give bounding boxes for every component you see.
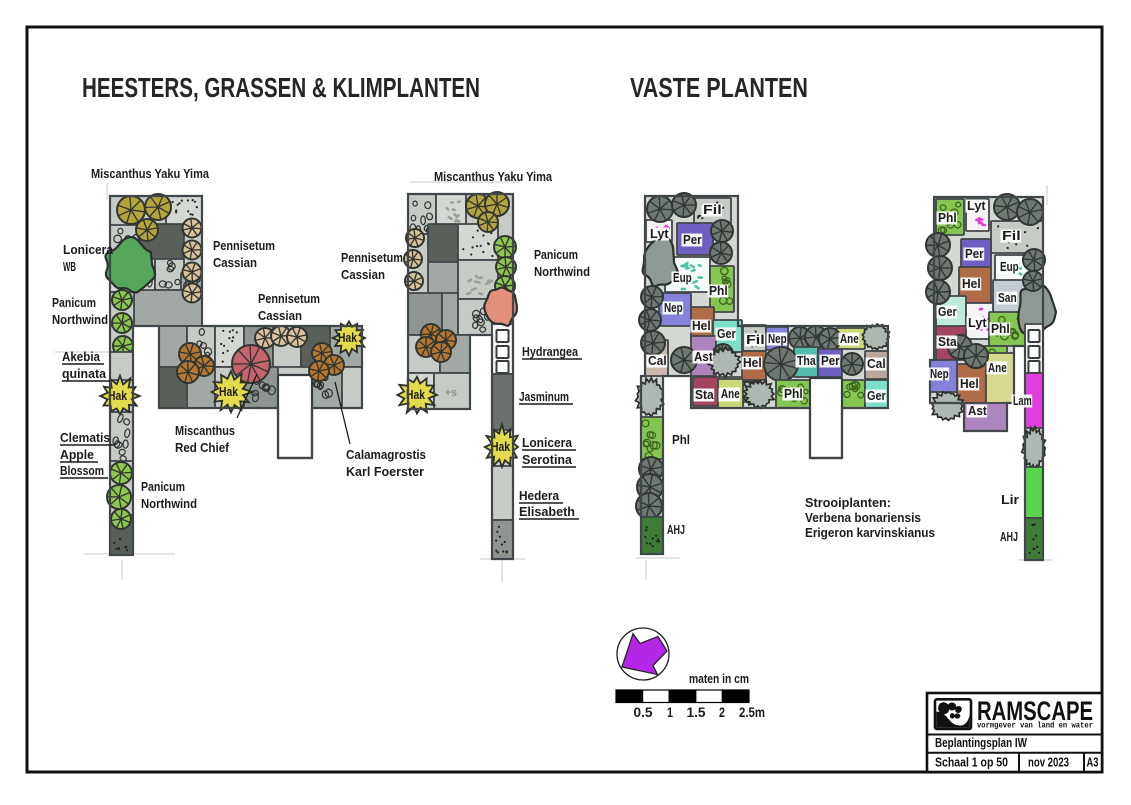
svg-text:Pennisetum: Pennisetum [213, 238, 275, 253]
svg-text:Miscanthus: Miscanthus [175, 423, 235, 438]
svg-text:Akebia: Akebia [62, 349, 101, 364]
svg-text:Karl Foerster: Karl Foerster [346, 464, 424, 479]
svg-text:VASTE PLANTEN: VASTE PLANTEN [630, 72, 808, 103]
svg-text:Beplantingsplan IW: Beplantingsplan IW [935, 735, 1028, 750]
svg-text:Hel: Hel [743, 355, 762, 370]
svg-text:Lonicera: Lonicera [522, 435, 573, 450]
svg-text:Lyt: Lyt [967, 198, 986, 213]
svg-text:Panicum: Panicum [52, 295, 96, 310]
svg-text:quinata: quinata [62, 366, 107, 381]
svg-text:Calamagrostis: Calamagrostis [346, 447, 426, 462]
svg-text:Lonicera: Lonicera [63, 242, 114, 257]
svg-text:HEESTERS, GRASSEN & KLIMPLANTE: HEESTERS, GRASSEN & KLIMPLANTEN [82, 72, 480, 103]
svg-text:Per: Per [683, 232, 702, 247]
svg-text:Tha: Tha [797, 353, 816, 368]
svg-text:Verbena bonariensis: Verbena bonariensis [805, 510, 921, 525]
svg-text:Lyt: Lyt [650, 226, 669, 241]
svg-text:Sta: Sta [938, 334, 957, 349]
svg-text:1.5: 1.5 [687, 705, 706, 720]
svg-text:Lyt: Lyt [968, 315, 987, 330]
svg-text:Hel: Hel [692, 318, 711, 333]
svg-text:Phl: Phl [672, 432, 690, 447]
svg-text:Jasminum: Jasminum [519, 389, 569, 404]
svg-text:Blossom: Blossom [60, 463, 104, 478]
svg-text:Panicum: Panicum [534, 247, 578, 262]
svg-text:Eup: Eup [673, 270, 692, 285]
svg-text:Serotina: Serotina [522, 452, 573, 467]
svg-text:Hel: Hel [962, 276, 981, 291]
svg-text:Nep: Nep [930, 366, 949, 381]
svg-text:Ane: Ane [721, 386, 740, 401]
svg-text:Lam: Lam [1013, 393, 1032, 408]
svg-text:Phl: Phl [784, 386, 803, 401]
svg-text:Cassian: Cassian [213, 255, 257, 270]
svg-text:Hak: Hak [338, 330, 358, 345]
svg-text:Lir: Lir [1001, 492, 1019, 507]
svg-text:Ger: Ger [938, 304, 957, 319]
svg-text:Pennisetum: Pennisetum [341, 250, 403, 265]
svg-text:Erigeron karvinskianus: Erigeron karvinskianus [805, 525, 935, 540]
svg-text:Panicum: Panicum [141, 479, 185, 494]
svg-text:Ane: Ane [840, 331, 859, 346]
svg-text:Nep: Nep [664, 300, 683, 315]
svg-text:Cal: Cal [867, 356, 886, 371]
svg-text:Apple: Apple [60, 447, 94, 462]
svg-text:2: 2 [719, 705, 725, 720]
svg-text:Fil: Fil [703, 202, 722, 217]
svg-text:Eup: Eup [1000, 259, 1019, 274]
svg-text:Phl: Phl [938, 210, 957, 225]
svg-text:Hydrangea: Hydrangea [522, 344, 579, 359]
svg-text:WB: WB [63, 259, 76, 274]
svg-text:Hedera: Hedera [519, 488, 560, 503]
svg-text:Strooiplanten:: Strooiplanten: [805, 495, 891, 510]
svg-text:Fil: Fil [746, 332, 765, 347]
svg-text:Hel: Hel [960, 376, 979, 391]
svg-text:Pennisetum: Pennisetum [258, 291, 320, 306]
svg-text:Phl: Phl [709, 283, 728, 298]
svg-text:Northwind: Northwind [52, 312, 108, 327]
svg-text:Miscanthus Yaku Yima: Miscanthus Yaku Yima [434, 169, 553, 184]
svg-text:Northwind: Northwind [141, 496, 197, 511]
svg-text:Cassian: Cassian [341, 267, 385, 282]
svg-text:Sta: Sta [695, 387, 714, 402]
svg-text:Schaal 1 op 50: Schaal 1 op 50 [935, 755, 1008, 770]
svg-text:Elisabeth: Elisabeth [519, 504, 575, 519]
svg-text:Northwind: Northwind [534, 264, 590, 279]
svg-text:vormgever van land en water: vormgever van land en water [977, 722, 1093, 731]
svg-text:AHJ: AHJ [667, 522, 685, 537]
svg-text:maten in cm: maten in cm [689, 671, 749, 686]
svg-text:+s: +s [445, 387, 457, 399]
svg-text:San: San [998, 290, 1017, 305]
svg-text:A3: A3 [1087, 755, 1099, 770]
svg-text:2.5m: 2.5m [739, 705, 765, 720]
svg-text:Fil: Fil [1002, 228, 1021, 243]
svg-text:Ger: Ger [717, 326, 736, 341]
svg-text:Cassian: Cassian [258, 308, 302, 323]
svg-text:0.5: 0.5 [634, 705, 653, 720]
svg-text:Cal: Cal [648, 353, 667, 368]
svg-text:1: 1 [667, 705, 673, 720]
svg-text:Ast: Ast [968, 403, 987, 418]
svg-text:Hak: Hak [491, 439, 511, 454]
svg-text:Phl: Phl [991, 321, 1010, 336]
svg-text:Ast: Ast [694, 349, 713, 364]
svg-text:Nep: Nep [768, 331, 787, 346]
svg-text:Per: Per [965, 246, 984, 261]
svg-text:Miscanthus Yaku Yima: Miscanthus Yaku Yima [91, 166, 210, 181]
svg-text:AHJ: AHJ [1000, 529, 1018, 544]
svg-text:Ane: Ane [988, 360, 1007, 375]
svg-text:Clematis: Clematis [60, 430, 110, 445]
svg-text:Hak: Hak [219, 384, 239, 399]
svg-text:Ger: Ger [867, 388, 886, 403]
svg-text:Per: Per [821, 353, 840, 368]
svg-text:Red Chief: Red Chief [175, 440, 230, 455]
svg-text:nov 2023: nov 2023 [1028, 755, 1069, 770]
